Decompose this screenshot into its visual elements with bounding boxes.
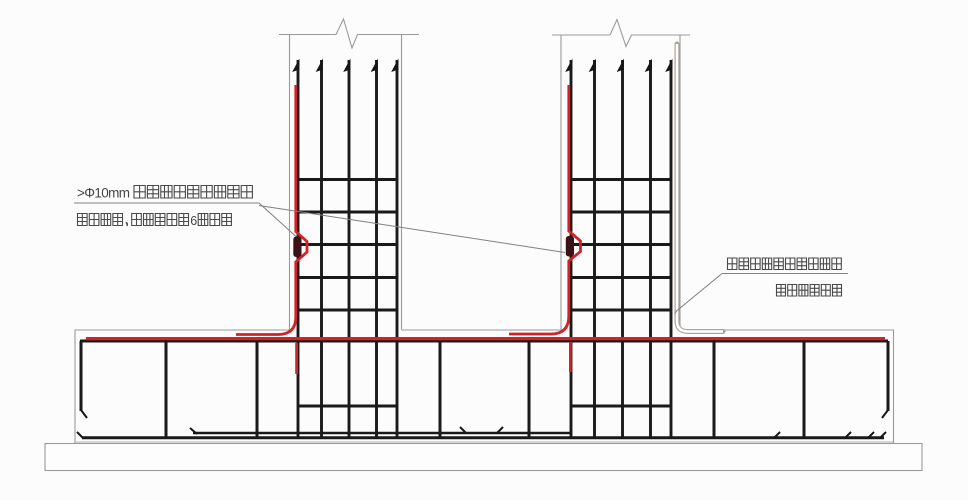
svg-text:>Φ10mm: >Φ10mm [77, 186, 130, 201]
svg-text:6: 6 [190, 214, 197, 228]
